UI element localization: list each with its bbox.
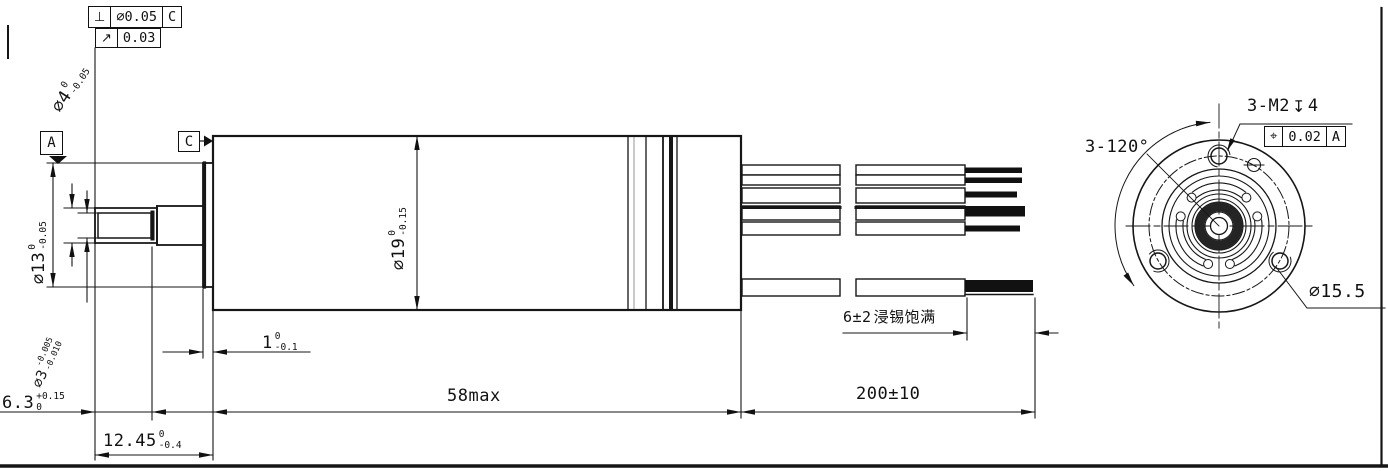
lower-tolerance: 0 [36, 403, 65, 414]
dimension-value: ∅19 [391, 238, 408, 270]
perpendicularity-datum-ref: C [163, 7, 181, 27]
front-boss [203, 163, 213, 287]
runout-tolerance-frame: ↗ 0.03 [95, 28, 161, 48]
perpendicularity-tolerance-value: ∅0.05 [111, 7, 163, 27]
tinning-note: 浸锡饱满 [874, 310, 936, 325]
pilot-length-dimension: 1 0-0.1 [262, 331, 298, 352]
hub-diameter-dimension: ∅13 0-0.05 [27, 221, 48, 284]
lower-tolerance: -0.4 [159, 441, 182, 452]
datum-label-c: C [178, 131, 200, 152]
depth-icon: ↧ [1292, 99, 1306, 115]
perpendicularity-icon: ⊥ [94, 11, 105, 24]
dimension-value: 6.3 [2, 395, 34, 412]
dimension-value: 3-120° [1085, 139, 1149, 156]
perpendicularity-tolerance-frame: ⊥ ∅0.05 C [88, 6, 182, 28]
dimension-value: ∅13 [31, 252, 48, 284]
tinned-length-dimension: 6±2 浸锡饱满 [843, 310, 936, 325]
body-length-dimension: 58max [447, 388, 501, 405]
circular-runout-icon: ↗ [101, 32, 112, 45]
dimension-value: 12.45 [103, 433, 157, 450]
mount-circle-diameter-dimension: ∅15.5 [1309, 283, 1366, 301]
lead-wires [742, 165, 1033, 296]
output-shaft [95, 206, 203, 245]
thread-callout-dimension: 3-M2 ↧ 4 [1247, 98, 1319, 115]
drawing-geometry [0, 0, 1388, 471]
thread-depth-value: 4 [1308, 98, 1319, 115]
dimension-value: ∅15.5 [1309, 283, 1366, 301]
hole-spacing-dimension: 3-120° [1085, 139, 1149, 156]
lower-tolerance: -0.15 [399, 207, 410, 236]
dimension-value: 1 [262, 335, 273, 352]
lower-tolerance: -0.05 [39, 221, 50, 250]
dimension-value: 58max [447, 388, 501, 405]
position-tolerance-frame: ⌖ 0.02 A [1264, 126, 1346, 147]
lower-tolerance: -0.1 [275, 343, 298, 354]
lead-length-dimension: 200±10 [856, 386, 920, 403]
motor-body-outline [213, 136, 741, 310]
dimension-value: 3-M2 [1247, 98, 1290, 115]
position-tolerance-value: 0.02 [1283, 127, 1327, 146]
shaft-length-dimension: 12.45 0-0.4 [103, 429, 182, 450]
dimension-value: 200±10 [856, 386, 920, 403]
body-diameter-dimension: ∅19 0-0.15 [387, 207, 408, 270]
position-datum-ref: A [1327, 127, 1345, 146]
technical-drawing-canvas: ⊥ ∅0.05 C ↗ 0.03 ⌖ 0.02 A A C ∅4 0-0.05 … [0, 0, 1388, 471]
pinion-length-dimension: 6.3 +0.150 [2, 391, 65, 412]
true-position-icon: ⌖ [1270, 130, 1277, 143]
datum-label-a: A [40, 131, 63, 155]
runout-tolerance-value: 0.03 [118, 29, 161, 47]
dimension-value: 6±2 [843, 310, 872, 325]
